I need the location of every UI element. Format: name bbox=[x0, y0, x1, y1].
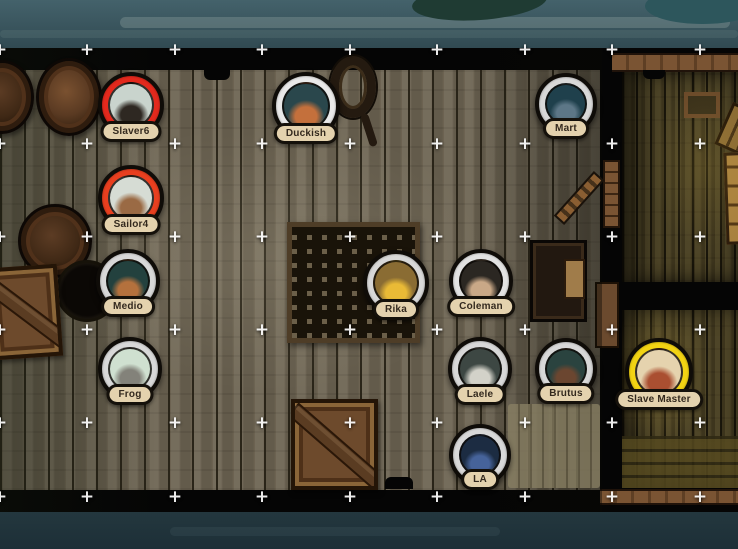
token-label: Slaver6 bbox=[101, 121, 162, 142]
token-label: LA bbox=[461, 469, 499, 490]
token-label: Brutus bbox=[537, 383, 594, 404]
token-layer: Slaver6Sailor4MedioFrogDuckishMartRikaCo… bbox=[0, 0, 738, 549]
token-coleman[interactable]: Coleman bbox=[449, 249, 513, 313]
token-label: Laele bbox=[455, 384, 506, 405]
token-label: Rika bbox=[373, 299, 419, 320]
token-slaver6[interactable]: Slaver6 bbox=[98, 72, 164, 138]
token-rika[interactable]: Rika bbox=[363, 250, 429, 316]
token-mart[interactable]: Mart bbox=[535, 73, 597, 135]
token-label: Medio bbox=[101, 296, 155, 317]
token-label: Frog bbox=[106, 384, 153, 405]
vtt-map-canvas[interactable]: ++++++++++++++++++++++++++++++++++++++++… bbox=[0, 0, 738, 549]
token-label: Duckish bbox=[274, 123, 338, 144]
token-label: Coleman bbox=[447, 296, 515, 317]
token-la[interactable]: LA bbox=[449, 424, 511, 486]
token-label: Mart bbox=[543, 118, 589, 139]
token-duckish[interactable]: Duckish bbox=[272, 72, 340, 140]
token-label: Slave Master bbox=[615, 389, 703, 410]
token-laele[interactable]: Laele bbox=[448, 337, 512, 401]
token-sailor4[interactable]: Sailor4 bbox=[98, 165, 164, 231]
token-frog[interactable]: Frog bbox=[98, 337, 162, 401]
token-brutus[interactable]: Brutus bbox=[535, 338, 597, 400]
token-slave-master[interactable]: Slave Master bbox=[625, 338, 693, 406]
token-medio[interactable]: Medio bbox=[96, 249, 160, 313]
token-label: Sailor4 bbox=[102, 214, 161, 235]
